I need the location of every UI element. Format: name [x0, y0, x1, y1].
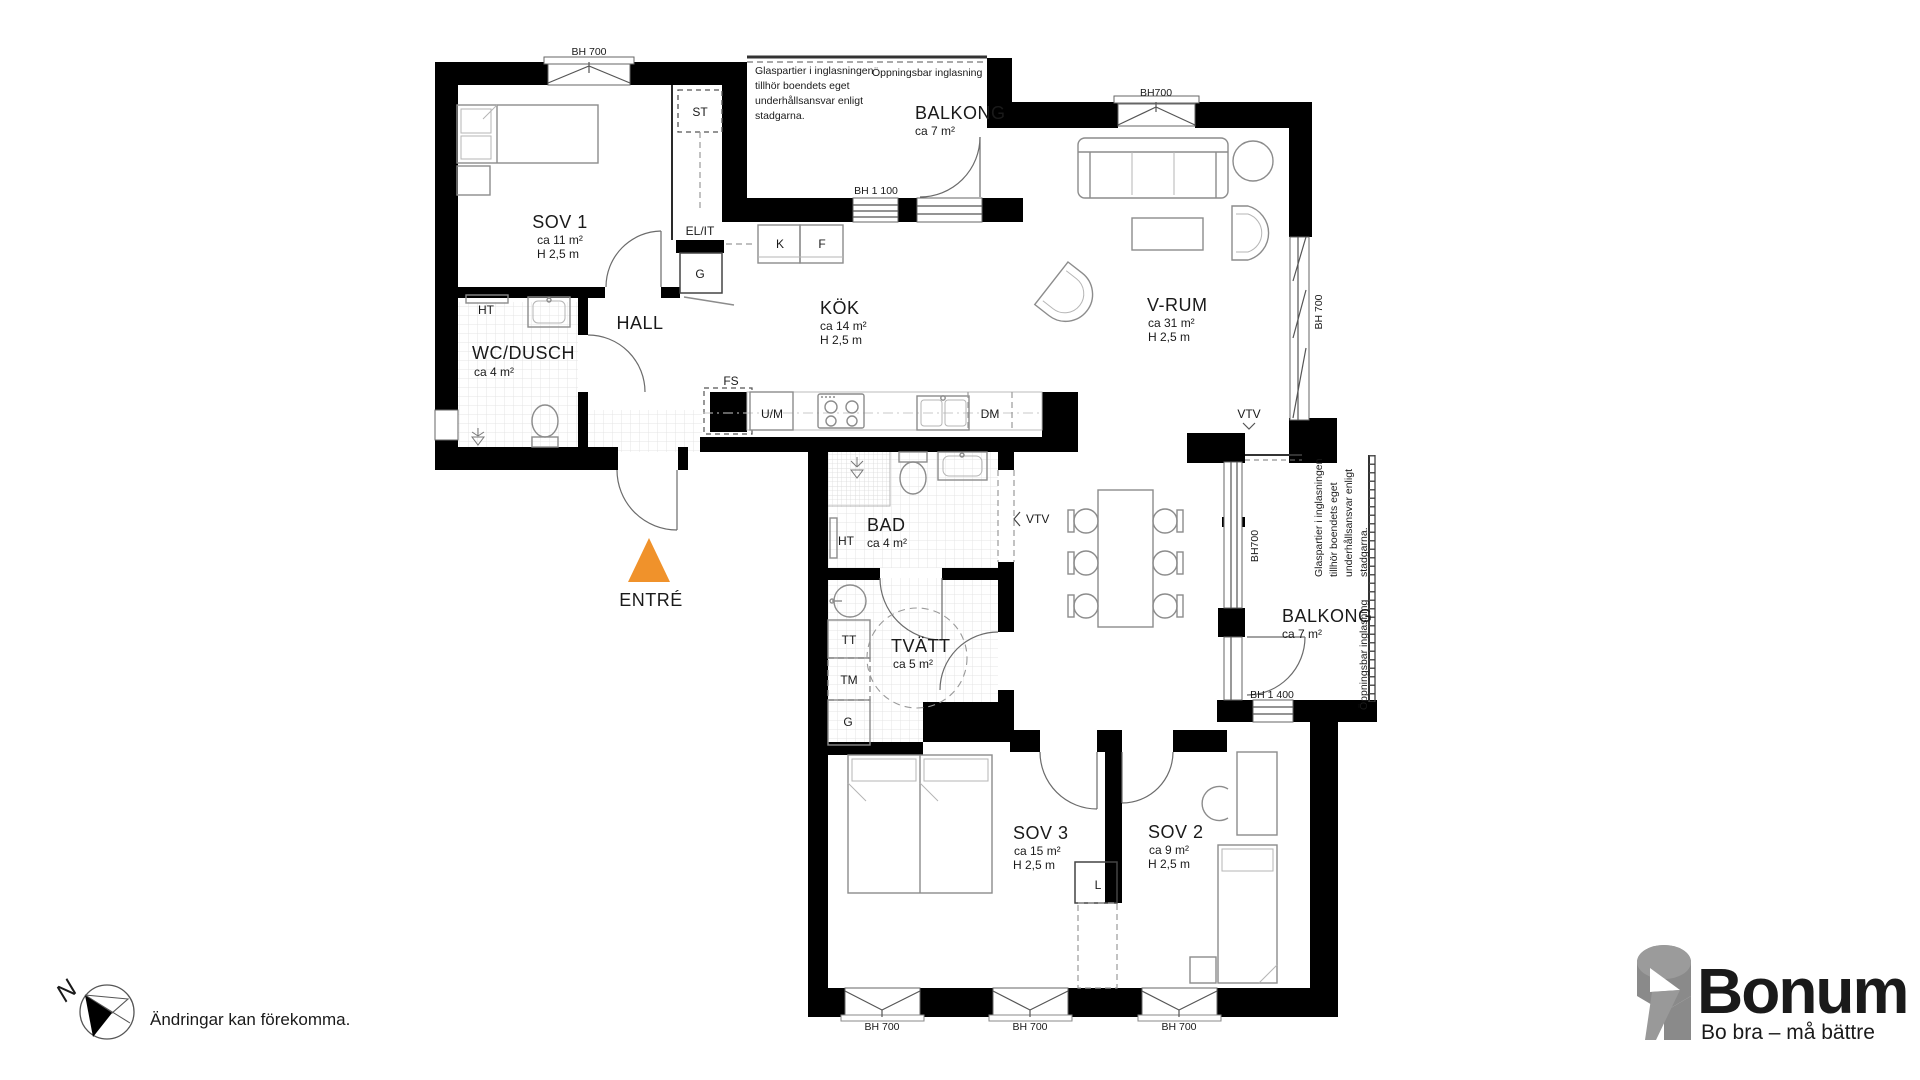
room-label-sov3: SOV 3 [1013, 823, 1069, 843]
vtv-arrow-icon [1014, 512, 1020, 526]
room-area-vrum: ca 31 m² [1148, 316, 1195, 330]
label-vtv-top: VTV [1237, 407, 1260, 421]
room-height-vrum: H 2,5 m [1148, 330, 1190, 344]
label-f: F [818, 237, 825, 251]
dim-bh700-balkong-right: BH700 [1249, 530, 1261, 562]
room-area-kok: ca 14 m² [820, 319, 867, 333]
dim-bh700-bottom-1: BH 700 [864, 1021, 899, 1033]
dining-table [1068, 490, 1183, 627]
room-label-wc: WC/DUSCH [472, 343, 575, 363]
floor-plan-drawing: N Bonum Bo bra – må bättre SOV 1 ca 11 m… [0, 0, 1920, 1080]
desk-sov2 [1202, 752, 1277, 835]
north-compass-icon: N [51, 974, 134, 1039]
window-kitchen-bh1100 [853, 198, 898, 222]
label-st: ST [692, 105, 708, 119]
window-vrum-top [1114, 96, 1199, 126]
room-area-balkong-top: ca 7 m² [915, 124, 955, 138]
window-bottom-2 [989, 988, 1072, 1021]
note-right-line-1: Glaspartier i inglasningen [1313, 458, 1325, 577]
label-elit: EL/IT [686, 224, 715, 238]
room-label-kok: KÖK [820, 298, 860, 318]
room-label-balkong-top: BALKONG [915, 103, 1006, 123]
room-area-sov2: ca 9 m² [1149, 843, 1189, 857]
room-label-vrum: V-RUM [1147, 295, 1208, 315]
label-vtv-bad: VTV [1026, 512, 1049, 526]
label-g-hall: G [695, 267, 704, 281]
window-dining-east [1224, 462, 1242, 700]
note-right-line-2: tillhör boendets eget [1328, 482, 1340, 577]
room-height-kok: H 2,5 m [820, 333, 862, 347]
room-label-tvatt: TVÄTT [891, 636, 951, 656]
bed-sov2 [1190, 845, 1277, 983]
dim-bh700-vrum-top: BH700 [1140, 87, 1172, 99]
floorplan-page: N Bonum Bo bra – må bättre SOV 1 ca 11 m… [0, 0, 1920, 1080]
room-label-hall: HALL [616, 313, 663, 333]
label-dm: DM [981, 407, 1000, 421]
door-entrance [617, 470, 677, 530]
entre-arrow-icon [628, 538, 670, 582]
label-fs: FS [723, 374, 738, 388]
l-closet-reserved [1078, 903, 1117, 988]
note-right-line-4: stadgarna. [1358, 527, 1370, 577]
dim-bh700-bottom-3: BH 700 [1161, 1021, 1196, 1033]
coffee-table [1132, 218, 1203, 250]
door-wc [588, 335, 645, 392]
window-wc [435, 410, 458, 440]
label-um: U/M [761, 407, 783, 421]
room-label-entre: ENTRÉ [619, 590, 683, 610]
note-line-3: underhållsansvar enligt [755, 95, 863, 107]
side-table [1233, 141, 1273, 181]
note-line-4: stadgarna. [755, 110, 805, 122]
tiled-floors [458, 302, 998, 742]
disclaimer-text: Ändringar kan förekomma. [150, 1010, 350, 1029]
dim-bh700-vrum-right: BH 700 [1313, 294, 1325, 329]
room-height-sov3: H 2,5 m [1013, 858, 1055, 872]
armchair-left [1035, 262, 1104, 332]
room-area-bad: ca 4 m² [867, 536, 907, 550]
window-sov2-balcony [1253, 700, 1293, 722]
dim-bh700-sov1: BH 700 [571, 46, 606, 58]
note-openable-top: Öppningsbar inglasning [872, 67, 982, 79]
note-line-1: Glaspartier i inglasningen [755, 65, 874, 77]
door-balcony-right [1247, 637, 1305, 695]
bed-sov1 [457, 105, 598, 195]
room-area-balkong-right: ca 7 m² [1282, 627, 1322, 641]
room-label-sov2: SOV 2 [1148, 822, 1204, 842]
room-height-sov1: H 2,5 m [537, 247, 579, 261]
bed-sov3 [848, 755, 992, 893]
room-label-bad: BAD [867, 515, 906, 535]
door-sov3 [1040, 752, 1097, 809]
north-letter: N [51, 974, 84, 1008]
brand-name: Bonum [1697, 955, 1907, 1027]
label-tt: TT [842, 633, 857, 647]
window-bottom-1 [841, 988, 924, 1021]
room-area-wc: ca 4 m² [474, 365, 514, 379]
sofa [1078, 138, 1228, 198]
room-height-sov2: H 2,5 m [1148, 857, 1190, 871]
dining-chairs [1068, 509, 1183, 618]
note-line-2: tillhör boendets eget [755, 80, 850, 92]
brand-tagline: Bo bra – må bättre [1701, 1021, 1875, 1044]
balcony-door-top [917, 137, 982, 222]
label-ht-wc: HT [478, 303, 495, 317]
label-tm: TM [840, 673, 857, 687]
bonum-logo: Bonum Bo bra – må bättre [1637, 945, 1907, 1044]
armchair-right [1232, 206, 1269, 260]
label-l: L [1095, 878, 1102, 892]
label-ht-bad: HT [838, 534, 855, 548]
room-area-sov1: ca 11 m² [537, 233, 583, 247]
label-k: K [776, 237, 784, 251]
room-area-tvatt: ca 5 m² [893, 657, 933, 671]
label-g-tvatt: G [843, 715, 852, 729]
window-bottom-3 [1138, 988, 1221, 1021]
window-sov1 [544, 57, 634, 85]
window-vrum-east [1290, 237, 1309, 420]
dim-bh1400: BH 1 400 [1250, 689, 1294, 701]
room-area-sov3: ca 15 m² [1014, 844, 1061, 858]
note-openable-right: Öppningsbar inglasning [1358, 600, 1370, 710]
door-sov2 [1122, 752, 1173, 803]
glazing-note-right: Glaspartier i inglasningen tillhör boend… [1313, 458, 1370, 710]
dim-bh1100: BH 1 100 [854, 185, 898, 197]
dim-bh700-bottom-2: BH 700 [1012, 1021, 1047, 1033]
room-label-sov1: SOV 1 [532, 212, 588, 232]
note-right-line-3: underhållsansvar enligt [1343, 469, 1355, 577]
bonum-logo-icon [1637, 945, 1691, 1040]
door-sov1 [606, 231, 661, 287]
